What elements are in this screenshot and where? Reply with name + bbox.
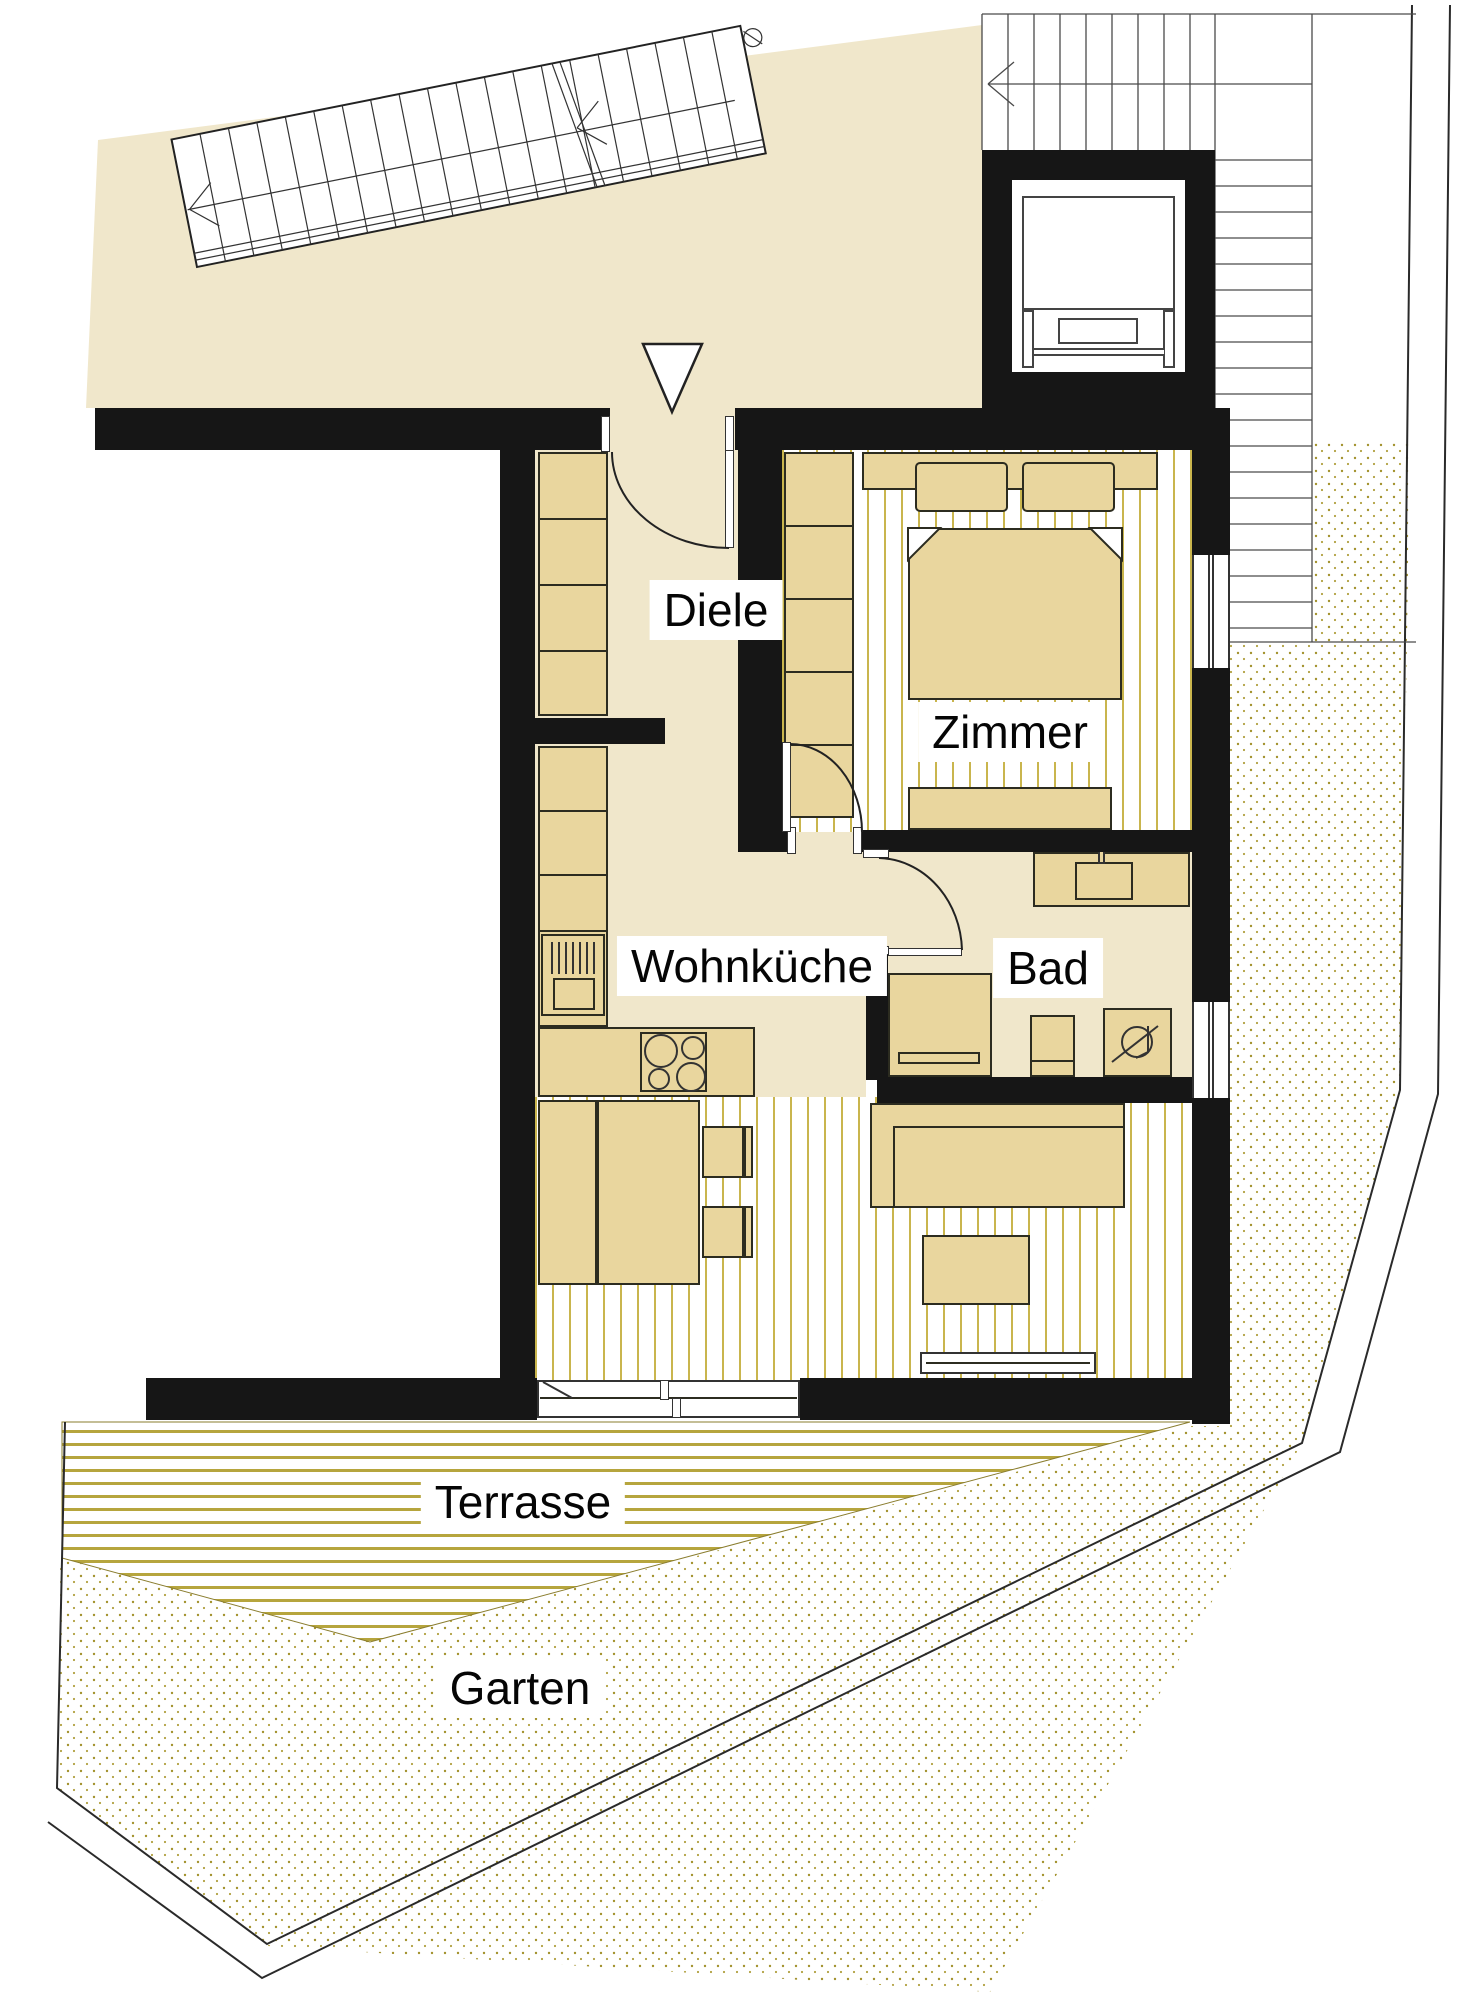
shower-drain-icon: [1112, 1026, 1158, 1062]
room-label-diele: Diele: [650, 580, 783, 640]
blanket-fold-icon: [908, 528, 940, 560]
room-label-garten: Garten: [436, 1658, 605, 1718]
room-label-terrasse: Terrasse: [421, 1472, 625, 1532]
terrace-door-opening-tick: [543, 1382, 572, 1398]
bad-door-swing: [879, 858, 962, 950]
detail-overlay: [0, 0, 1482, 2000]
entrance-door-swing: [612, 452, 729, 548]
entrance-marker-icon: [643, 344, 702, 412]
floor-plan: Diele Zimmer Wohnküche Bad Terrasse Gart…: [0, 0, 1482, 2000]
blanket-fold-icon: [1090, 528, 1122, 560]
room-label-zimmer: Zimmer: [918, 702, 1102, 762]
room-label-bad: Bad: [993, 938, 1103, 998]
stove-burners-icon: [645, 1035, 705, 1091]
zimmer-door-swing: [790, 744, 862, 832]
room-label-wohnkueche: Wohnküche: [617, 936, 887, 996]
